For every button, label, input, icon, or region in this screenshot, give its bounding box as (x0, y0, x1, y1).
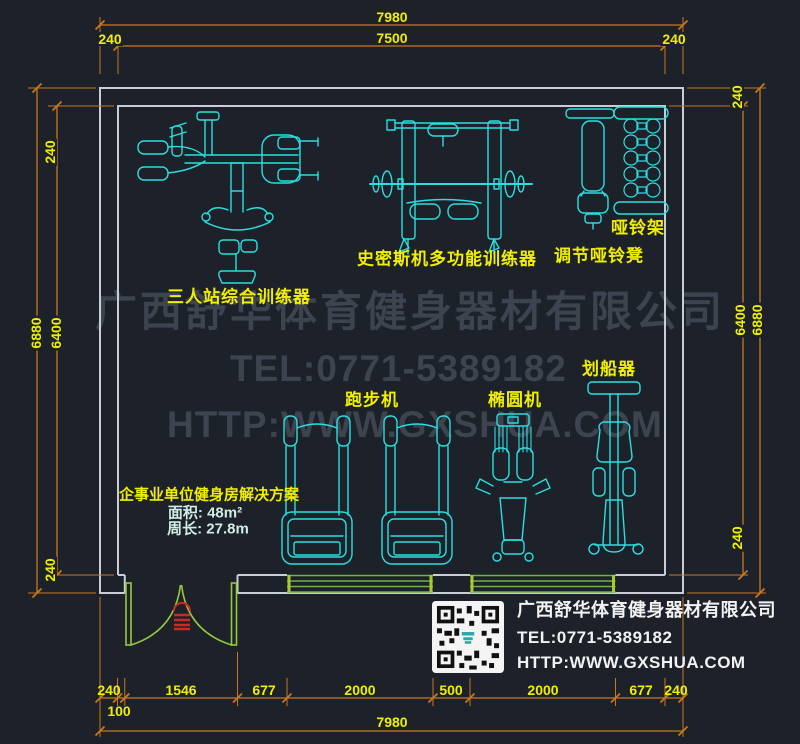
dim-right-top-wall: 240 (730, 83, 744, 110)
dim-top-left-wall: 240 (96, 32, 123, 46)
label-multi-gym: 三人站综合训练器 (167, 289, 311, 306)
dim-bottom-seg-5: 2000 (527, 683, 558, 697)
label-dumbbell-rack: 哑铃架 (611, 220, 665, 237)
elliptical-drawing (476, 414, 550, 561)
dim-bottom-seg-2: 677 (252, 683, 275, 697)
label-adjustable-bench: 调节哑铃凳 (554, 248, 644, 265)
dim-top-right-wall: 240 (660, 32, 687, 46)
smith-machine-drawing (370, 120, 532, 254)
footer-web: HTTP:WWW.GXSHUA.COM (517, 654, 746, 671)
dim-left-bottom-wall: 240 (43, 556, 57, 583)
floor-plan-page: 广西舒华体育健身器材有限公司 TEL:0771-5389182 HTTP:WWW… (0, 0, 800, 744)
adjustable-bench-drawing (566, 109, 614, 229)
dim-top-inner: 7500 (376, 31, 407, 45)
label-elliptical: 椭圆机 (488, 392, 542, 409)
label-treadmill: 跑步机 (345, 392, 399, 409)
dumbbell-rack-drawing (614, 107, 668, 214)
dim-bottom-overall: 7980 (376, 715, 407, 729)
dim-bottom-seg-7: 240 (664, 683, 687, 697)
dim-bottom-offset: 100 (107, 704, 130, 718)
solution-perimeter: 周长: 27.8m (167, 522, 249, 537)
window-strips (287, 575, 616, 592)
floor-plan-drawing (0, 0, 800, 744)
footer-tel: TEL:0771-5389182 (517, 629, 672, 646)
multi-gym-drawing (138, 112, 318, 283)
dim-right-outer: 6880 (750, 302, 764, 337)
dim-right-bottom-wall: 240 (730, 524, 744, 551)
dim-left-top-wall: 240 (43, 138, 57, 165)
solution-title: 企事业单位健身房解决方案 (119, 488, 299, 503)
dim-left-inner: 6400 (49, 315, 63, 350)
dim-bottom-seg-3: 2000 (344, 683, 375, 697)
dim-top-overall: 7980 (376, 10, 407, 24)
label-rower: 划船器 (582, 361, 636, 378)
rower-drawing (588, 382, 643, 554)
treadmill-2-drawing (382, 416, 452, 564)
solution-area: 面积: 48m² (168, 506, 242, 521)
dim-bottom-seg-0: 240 (97, 683, 120, 697)
qr-code (432, 600, 504, 674)
dim-bottom-seg-4: 500 (439, 683, 462, 697)
dim-left-outer: 6880 (29, 315, 43, 350)
dim-right-inner: 6400 (733, 302, 747, 337)
dim-bottom-seg-6: 677 (629, 683, 652, 697)
footer-company: 广西舒华体育健身器材有限公司 (517, 601, 776, 619)
label-smith-machine: 史密斯机多功能训练器 (357, 251, 537, 268)
dim-bottom-seg-1: 1546 (165, 683, 196, 697)
